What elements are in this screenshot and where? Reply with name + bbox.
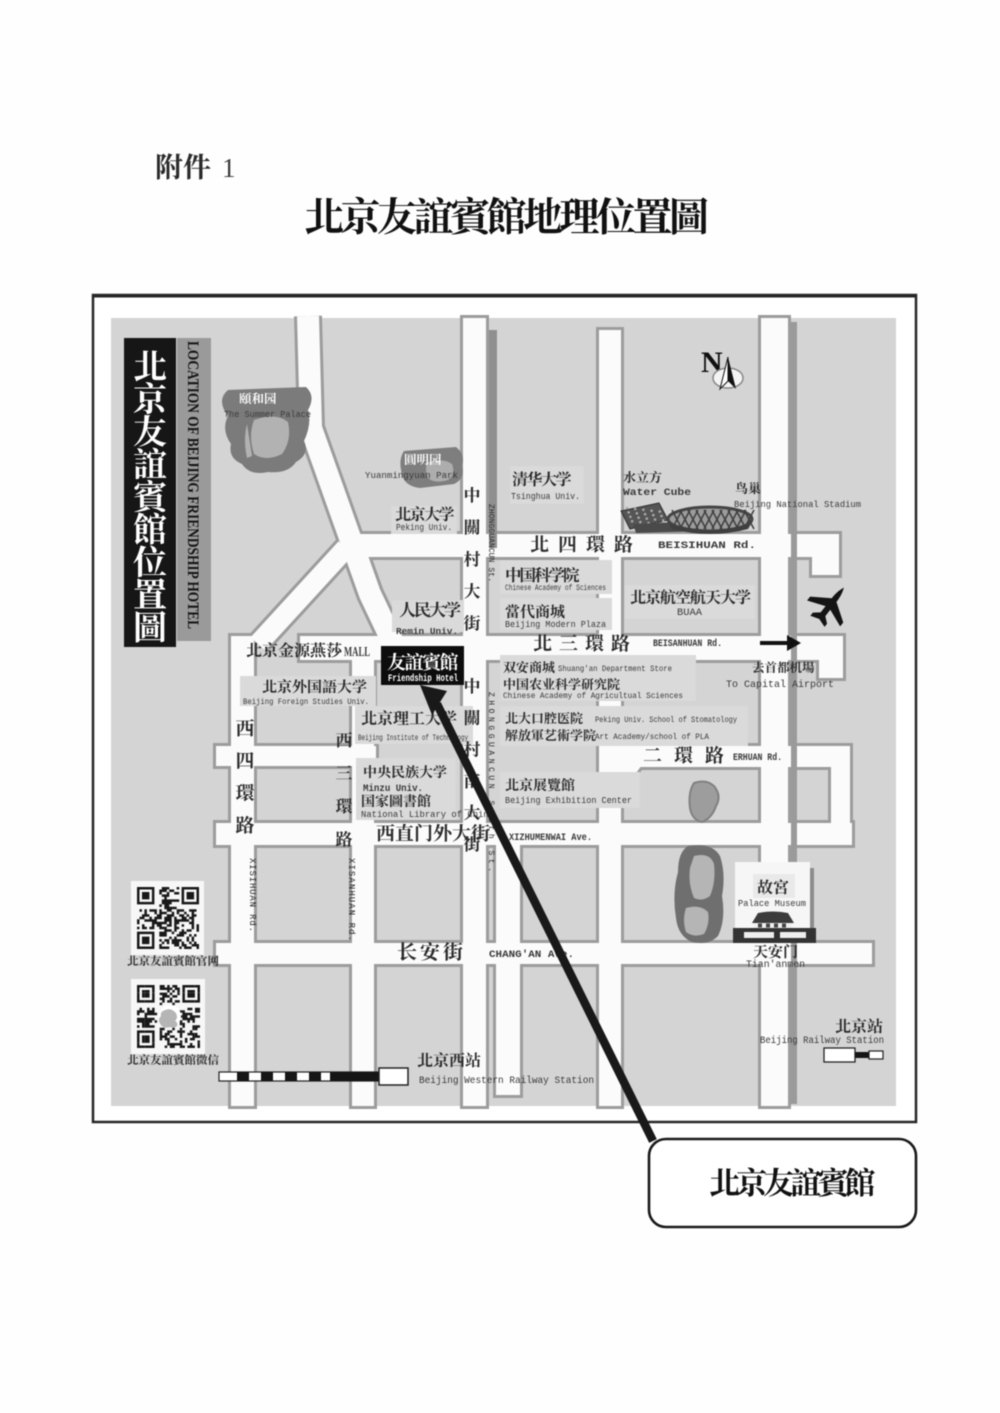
svg-text:Art Academy/school of PLA: Art Academy/school of PLA bbox=[595, 733, 709, 742]
svg-text:Beijing Modern Plaza: Beijing Modern Plaza bbox=[505, 620, 607, 630]
svg-text:Friendship Hotel: Friendship Hotel bbox=[388, 673, 458, 685]
svg-text:Beijing Exhibition Center: Beijing Exhibition Center bbox=[505, 795, 632, 806]
svg-text:Tsinghua Univ.: Tsinghua Univ. bbox=[511, 491, 580, 502]
svg-text:Chinese Academy of Agricultual: Chinese Academy of Agricultual Sciences bbox=[503, 692, 683, 701]
svg-text:To Capital Airport: To Capital Airport bbox=[726, 679, 834, 691]
svg-text:National Library of China: National Library of China bbox=[361, 809, 494, 820]
svg-text:ERHUAN Rd.: ERHUAN Rd. bbox=[733, 752, 782, 764]
svg-text:XISIHUAN Rd.: XISIHUAN Rd. bbox=[247, 858, 257, 932]
svg-text:XISANHUAN Rd.: XISANHUAN Rd. bbox=[346, 858, 356, 941]
svg-text:Tian'anmen: Tian'anmen bbox=[746, 959, 805, 971]
svg-text:The Summer Palace: The Summer Palace bbox=[224, 410, 311, 420]
svg-text:LOCATION OF BEIJING FRIENDSHIP: LOCATION OF BEIJING FRIENDSHIP HOTEL bbox=[184, 341, 201, 629]
svg-text:Beijing Railway Station: Beijing Railway Station bbox=[760, 1035, 884, 1047]
svg-text:Minzu Univ.: Minzu Univ. bbox=[363, 783, 423, 795]
svg-text:Peking Univ. School of Stomato: Peking Univ. School of Stomatology bbox=[595, 716, 737, 725]
svg-text:Remin Univ.: Remin Univ. bbox=[396, 626, 458, 637]
svg-text:Water Cube: Water Cube bbox=[623, 487, 691, 499]
svg-text:Beijing Western Railway Statio: Beijing Western Railway Station bbox=[419, 1075, 594, 1087]
svg-text:BUAA: BUAA bbox=[677, 608, 702, 619]
svg-text:Chinese Academy of Sciences: Chinese Academy of Sciences bbox=[505, 584, 606, 593]
svg-text:Shuang'an Department Store: Shuang'an Department Store bbox=[558, 665, 672, 674]
svg-text:ZHONGGUANCUN St.: ZHONGGUANCUN St. bbox=[486, 504, 495, 582]
svg-text:Yuanmingyuan Park: Yuanmingyuan Park bbox=[365, 470, 458, 481]
svg-text:Beijing National Stadium: Beijing National Stadium bbox=[734, 499, 861, 510]
svg-text:BEISANHUAN Rd.: BEISANHUAN Rd. bbox=[653, 638, 722, 650]
svg-text:MALL: MALL bbox=[344, 645, 370, 660]
svg-text:Palace Museum: Palace Museum bbox=[738, 898, 806, 909]
svg-text:XIZHUMENWAI Ave.: XIZHUMENWAI Ave. bbox=[509, 833, 592, 844]
svg-text:Beijing Foreign Studies Univ.: Beijing Foreign Studies Univ. bbox=[243, 697, 369, 707]
svg-text:Peking Univ.: Peking Univ. bbox=[396, 522, 452, 533]
svg-text:1: 1 bbox=[222, 153, 236, 183]
svg-text:BEISIHUAN Rd.: BEISIHUAN Rd. bbox=[658, 540, 756, 552]
